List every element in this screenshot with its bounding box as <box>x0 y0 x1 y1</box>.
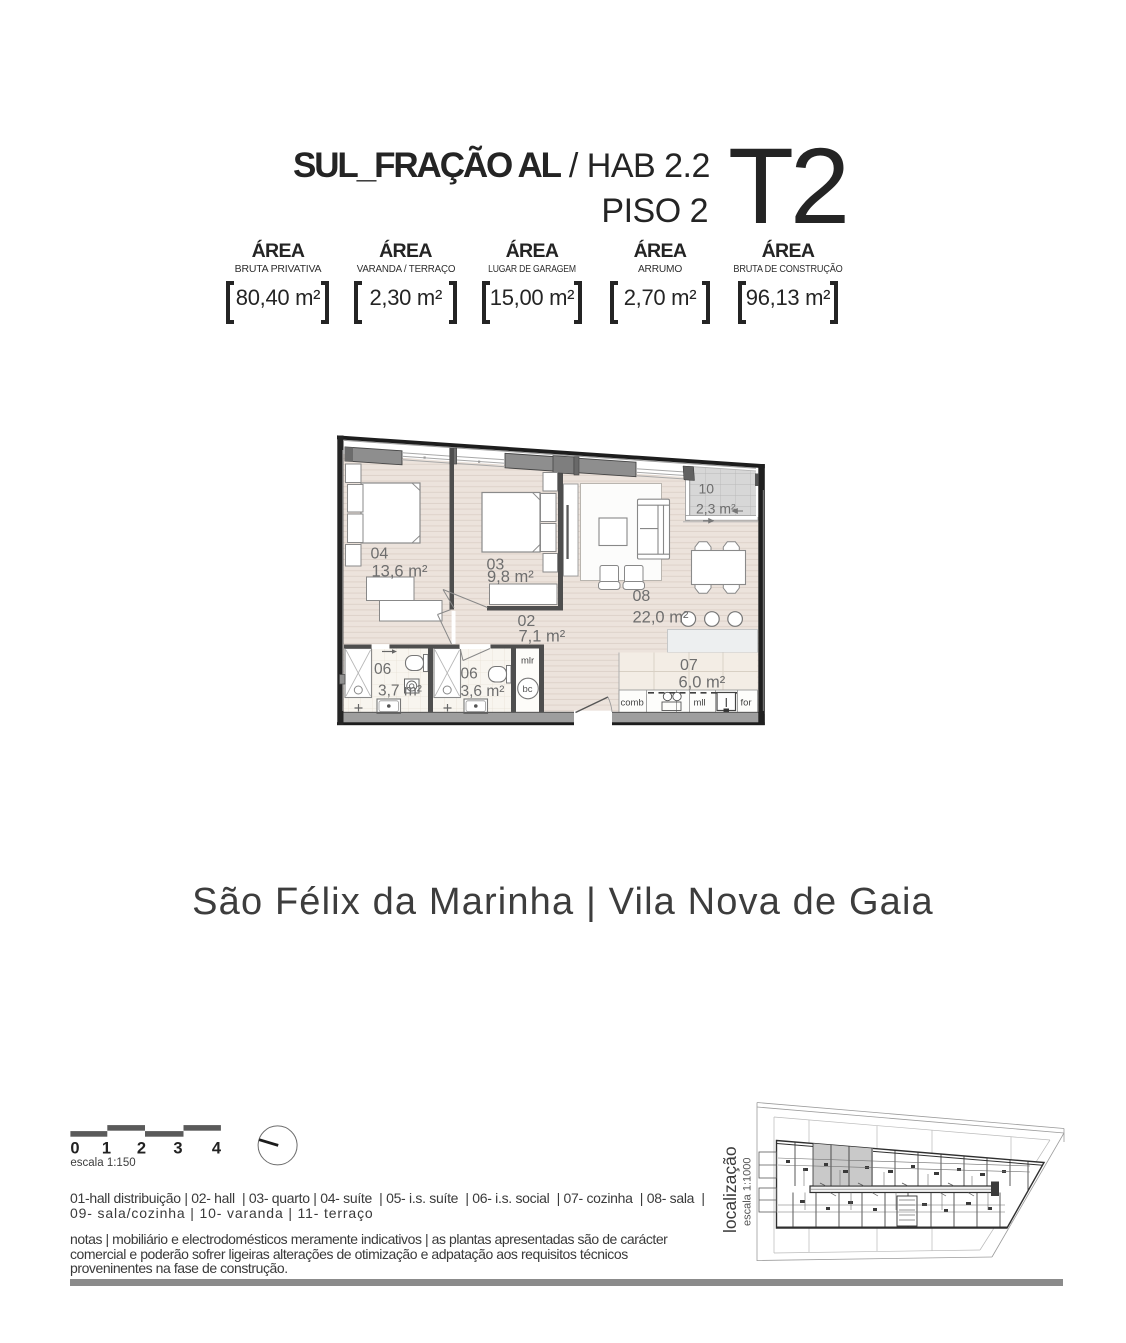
svg-text:2,3 m²: 2,3 m² <box>696 501 736 517</box>
svg-text:0: 0 <box>70 1140 79 1158</box>
svg-text:localização: localização <box>720 1146 740 1233</box>
svg-text:escala 1:1000: escala 1:1000 <box>742 1158 754 1227</box>
svg-text:06: 06 <box>461 666 478 683</box>
svg-text:bc: bc <box>523 684 533 695</box>
svg-text:6,0 m²: 6,0 m² <box>679 674 726 692</box>
svg-text:mll: mll <box>694 698 706 709</box>
svg-text:13,6 m²: 13,6 m² <box>372 563 428 581</box>
svg-text:06: 06 <box>374 661 391 678</box>
svg-text:escala 1:150: escala 1:150 <box>70 1157 135 1169</box>
svg-text:9,8 m²: 9,8 m² <box>487 568 534 586</box>
svg-text:3,6 m²: 3,6 m² <box>461 683 505 700</box>
svg-text:08: 08 <box>633 588 651 605</box>
svg-text:2: 2 <box>137 1140 146 1158</box>
svg-text:3: 3 <box>173 1140 182 1158</box>
svg-text:mlr: mlr <box>521 656 534 667</box>
svg-text:3,7 m²: 3,7 m² <box>378 683 422 700</box>
svg-text:04: 04 <box>371 546 389 563</box>
svg-text:10: 10 <box>699 481 715 497</box>
svg-text:7,1 m²: 7,1 m² <box>519 628 566 646</box>
svg-text:comb: comb <box>621 698 644 709</box>
svg-text:1: 1 <box>102 1140 111 1158</box>
svg-text:22,0 m²: 22,0 m² <box>633 609 689 627</box>
svg-text:for: for <box>741 698 752 709</box>
svg-text:4: 4 <box>212 1140 222 1158</box>
svg-text:07: 07 <box>680 657 698 674</box>
